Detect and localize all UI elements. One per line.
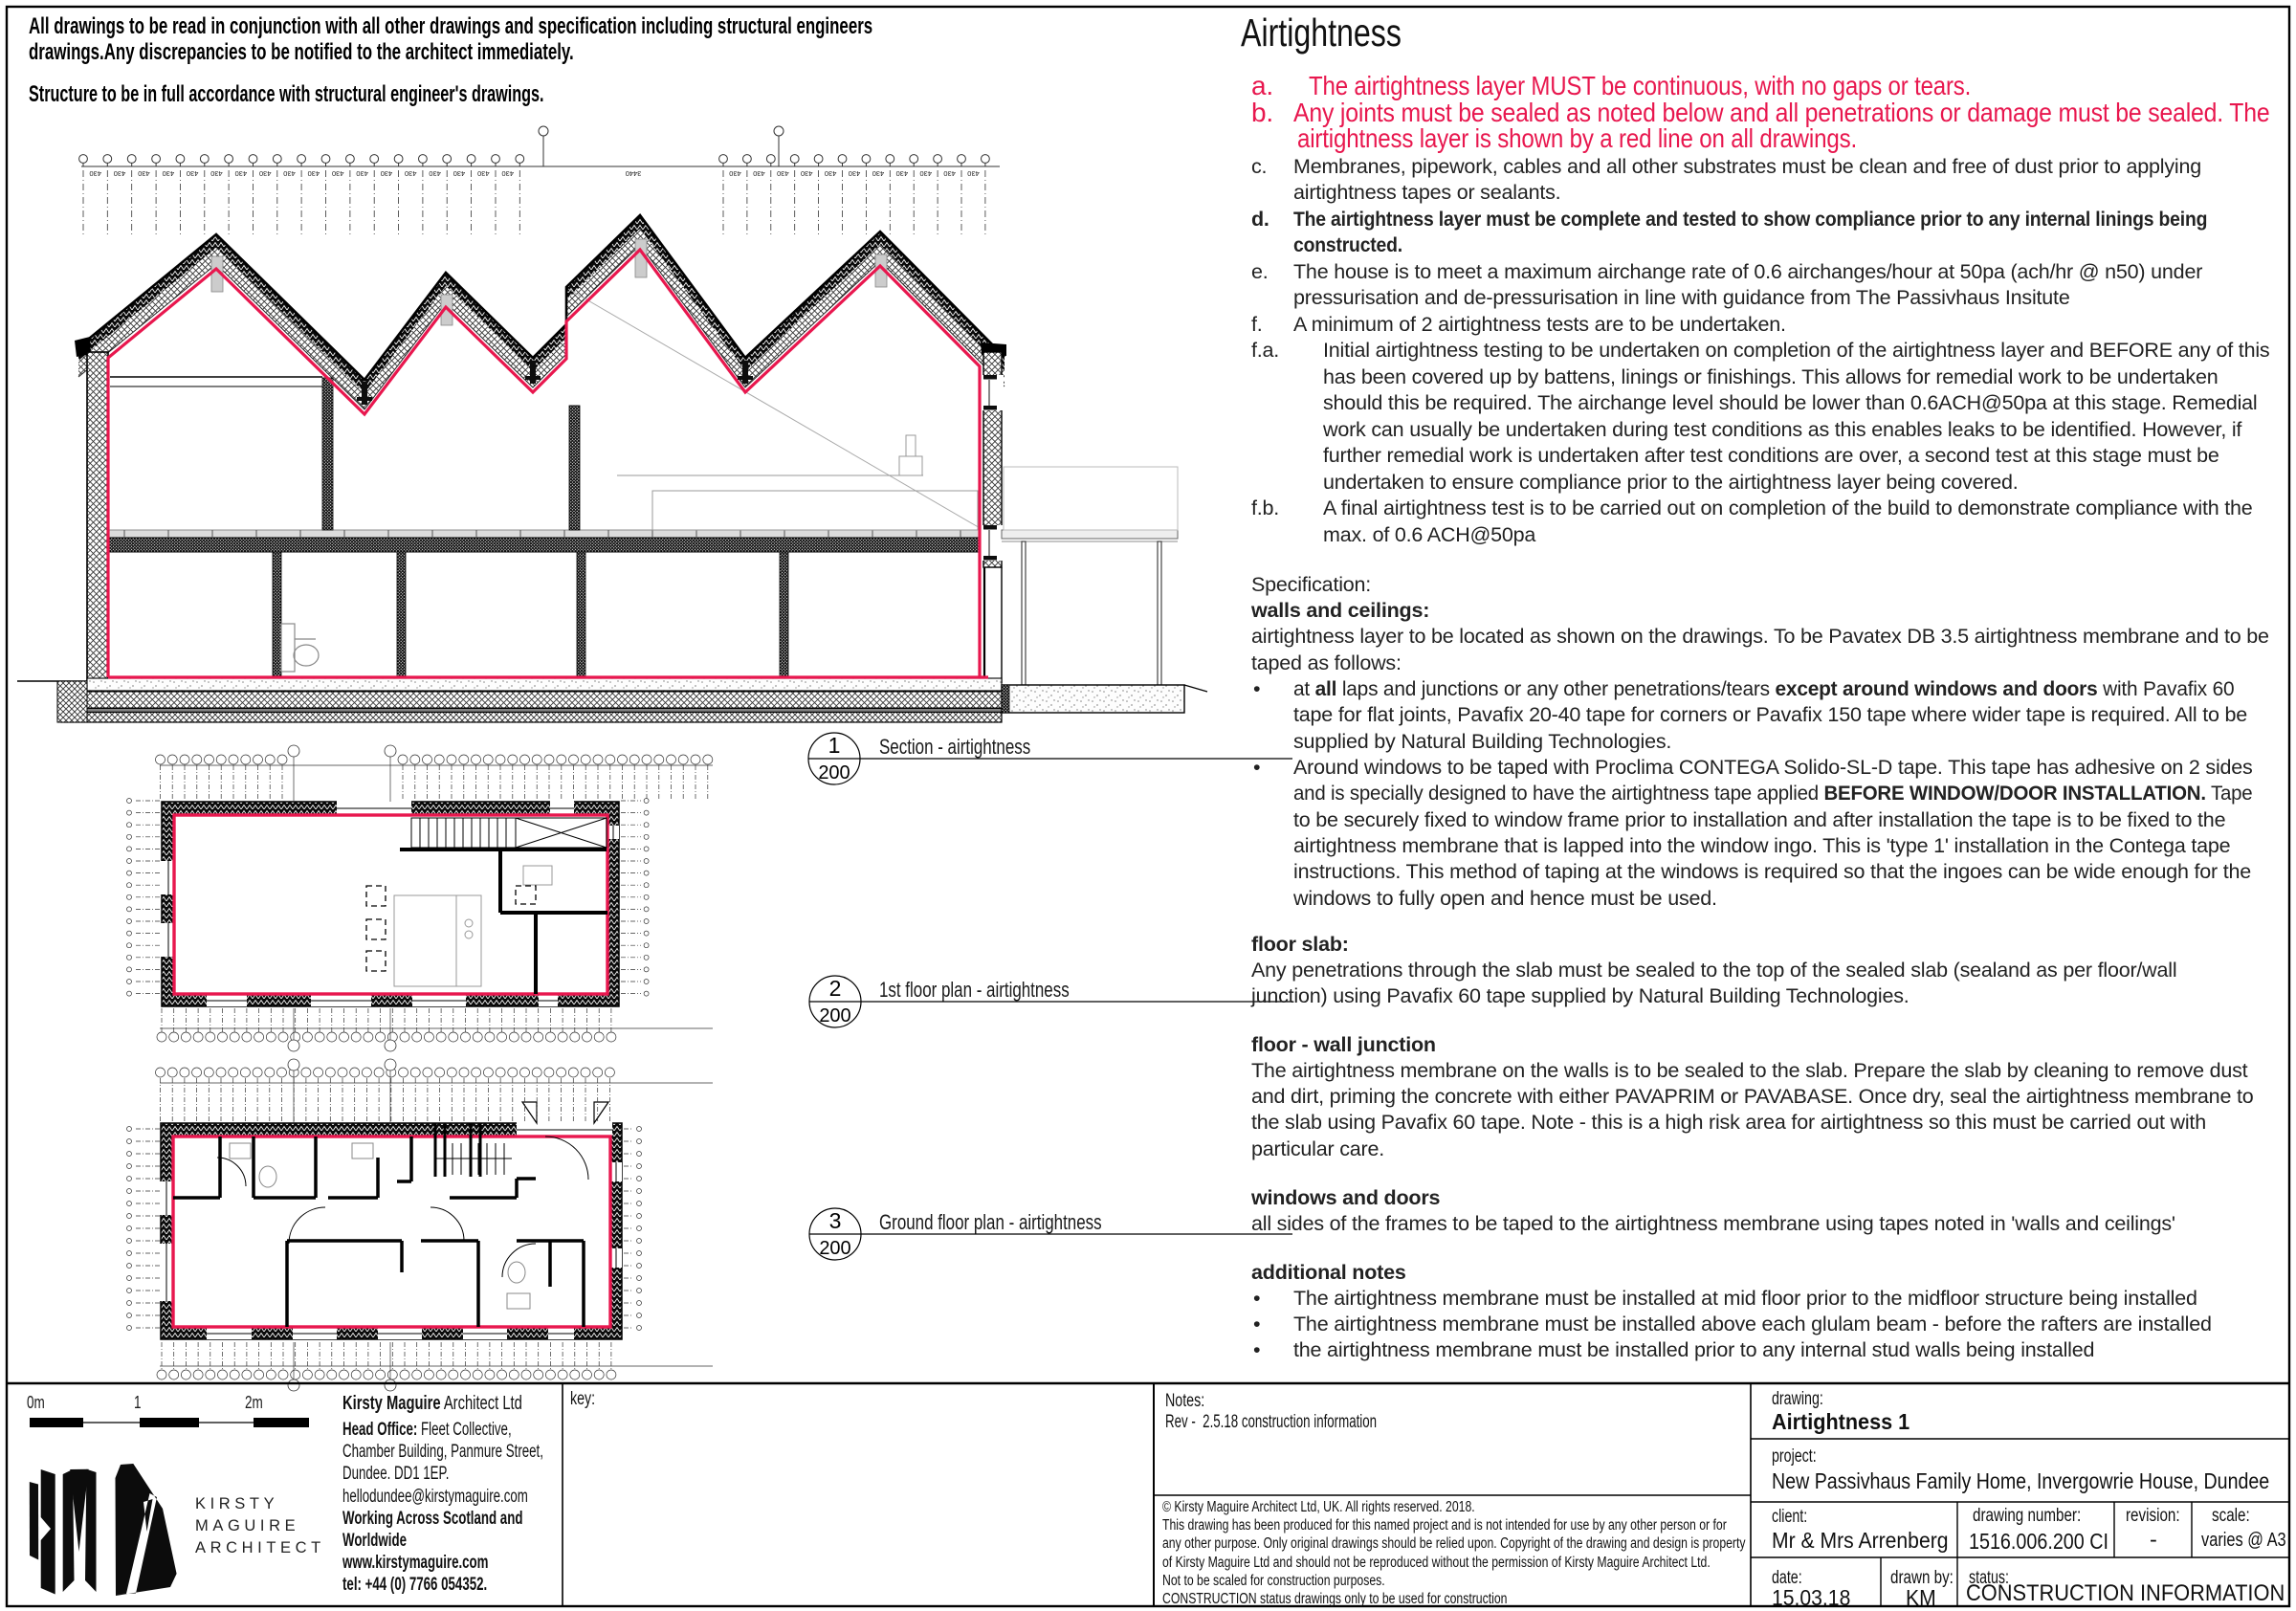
svg-text:430: 430 xyxy=(283,169,296,178)
svg-text:430: 430 xyxy=(89,169,101,178)
svg-text:430: 430 xyxy=(356,169,368,178)
svg-text:430: 430 xyxy=(477,169,490,178)
svg-text:200: 200 xyxy=(819,1238,850,1259)
svg-text:430: 430 xyxy=(453,169,466,178)
svg-text:3440: 3440 xyxy=(626,169,642,178)
svg-text:430: 430 xyxy=(501,169,514,178)
svg-text:430: 430 xyxy=(919,169,932,178)
svg-text:200: 200 xyxy=(819,1005,850,1026)
svg-text:430: 430 xyxy=(777,169,789,178)
svg-text:430: 430 xyxy=(235,169,248,178)
svg-text:430: 430 xyxy=(967,169,980,178)
svg-text:3: 3 xyxy=(829,1208,842,1233)
svg-text:430: 430 xyxy=(429,169,441,178)
svg-text:430: 430 xyxy=(332,169,344,178)
svg-text:430: 430 xyxy=(405,169,417,178)
svg-text:430: 430 xyxy=(210,169,223,178)
svg-text:430: 430 xyxy=(381,169,393,178)
svg-text:430: 430 xyxy=(138,169,150,178)
svg-text:2: 2 xyxy=(829,976,842,1001)
svg-text:430: 430 xyxy=(187,169,199,178)
svg-text:430: 430 xyxy=(896,169,909,178)
svg-text:430: 430 xyxy=(729,169,741,178)
svg-text:430: 430 xyxy=(943,169,956,178)
svg-text:1: 1 xyxy=(828,733,841,758)
svg-text:430: 430 xyxy=(849,169,861,178)
svg-text:430: 430 xyxy=(801,169,813,178)
svg-text:430: 430 xyxy=(753,169,765,178)
svg-text:430: 430 xyxy=(163,169,175,178)
svg-text:430: 430 xyxy=(825,169,837,178)
svg-text:430: 430 xyxy=(872,169,885,178)
svg-text:200: 200 xyxy=(818,762,850,783)
svg-text:430: 430 xyxy=(114,169,126,178)
svg-text:430: 430 xyxy=(259,169,272,178)
svg-text:430: 430 xyxy=(308,169,320,178)
